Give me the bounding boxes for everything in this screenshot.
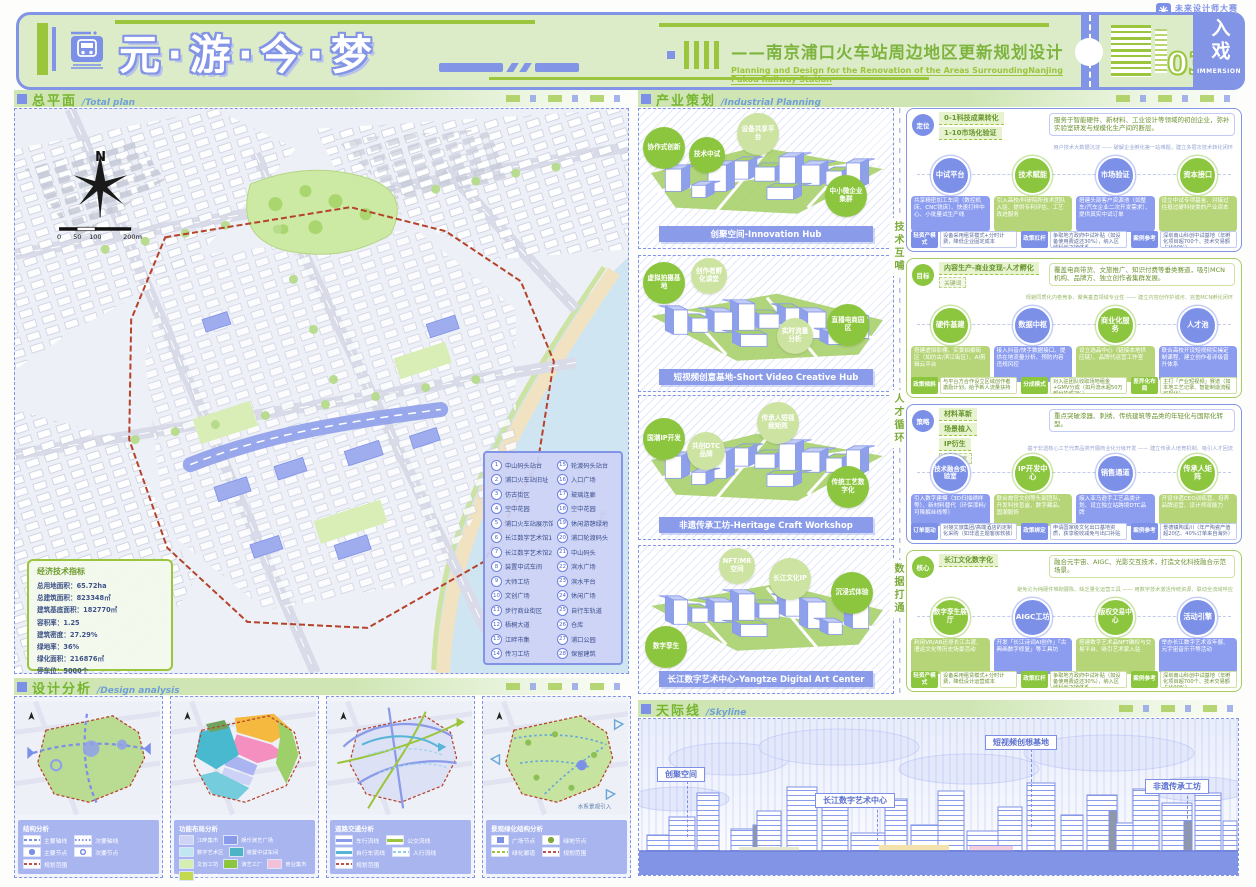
leader-line [1031, 749, 1032, 827]
circle-node: 传承人矩阵 [1178, 454, 1217, 493]
barcode-icon [1155, 29, 1167, 73]
svg-text:200m: 200m [123, 233, 142, 241]
block-keyword: 关键词 [939, 277, 966, 288]
circle-node: 资本接口 [1178, 156, 1217, 195]
master-plan-map: N 0 50 100 200m 长江 [14, 108, 629, 674]
leader-line [687, 781, 688, 837]
legend-item: 15轮渡码头站台 [557, 458, 619, 473]
barcode-icon [1111, 25, 1151, 77]
diagram-bubble: 长江文化IP [769, 558, 811, 600]
block-headline: 长江文化数字化 [939, 554, 998, 567]
panel-legend: 结构分析 主要轴线次要轴线主要节点次要节点规划范围 [18, 820, 159, 874]
diagram-bubble: 技术中试 [689, 137, 725, 173]
legend-swatch-icon [179, 835, 194, 845]
legend-item: 数字艺术区 [179, 847, 224, 857]
diagram-bubble: 虚拟拍摄基地 [643, 262, 685, 304]
right-column: 产业策划 /Industrial Planning 协作式创新 技术中试 设备共… [638, 90, 1242, 878]
block-headline: 1-10市场化验证 [939, 127, 1002, 140]
legend-item: 4空中花园 [491, 502, 553, 517]
legend-swatch-icon [23, 859, 41, 869]
section-ticks-decor [506, 683, 626, 690]
legend-swatch-icon [229, 847, 244, 857]
diagram-bubble: 设备共享平台 [737, 113, 779, 155]
circle-node: 数字孪生展厅 [931, 598, 970, 637]
legend-item: 25自行车轨道 [557, 603, 619, 618]
block-desc: 覆盖电商带货、文旅推广、知识付费等垂类赛道，吸引MCN机构、品牌方、独立创作者集… [1049, 263, 1235, 286]
legend-item: 车行流线 [335, 835, 379, 845]
legend-swatch-icon [179, 847, 194, 857]
block-note: 基于非遗核心工艺代表品类开展商业化分级开发 —— 建立传承人培育机制、吸引人才回… [1017, 445, 1233, 452]
block-note: 用户技术大数据沉淀 —— 破解企业孵化第一站难题，建立多层次技术转化闭环 [1017, 144, 1233, 151]
indicator-row: 绿化面积：216876㎡ [37, 653, 163, 663]
diagram-bubble: 直播电商园区 [827, 304, 869, 346]
badge-cn: 入戏 [1210, 18, 1229, 64]
ticket-hole [1075, 38, 1103, 66]
circle-node: 商业化服务 [1096, 306, 1135, 345]
section-title-industry: 产业策划 /Industrial Planning [638, 90, 1242, 107]
indicator-row: 建筑密度：27.29% [37, 629, 163, 639]
leader-line [1187, 791, 1188, 839]
block-headline: IP衍生 [939, 438, 971, 451]
indicator-row: 停车位：5000个 [37, 665, 163, 675]
industry-diagram-heritage-craft: 国潮IP开发 共创DTC品牌 传承人短视频矩阵 传统工艺数字化 非遗传承工坊-H… [638, 395, 894, 540]
legend-swatch-icon [542, 847, 560, 857]
legend-item: 16入口广场 [557, 473, 619, 488]
legend-item: 绿地节点 [542, 835, 586, 845]
block-footer: 政策倾斜与平台方合作设立区域创作者激励计划，给予新人流量扶持 分成模式对入驻团队… [911, 377, 1237, 394]
legend-item: 1中山码头站台 [491, 458, 553, 473]
legend-item: 24休闲广场 [557, 589, 619, 604]
ticket-divider [1081, 12, 1099, 90]
poster-title: 元·游·今·梦 [119, 21, 379, 81]
legend-item: 27浦口公园 [557, 632, 619, 647]
circle-node: 市场验证 [1096, 156, 1135, 195]
legend-item: 11步行商业街区 [491, 603, 553, 618]
legend-item: 次要节点 [74, 847, 118, 857]
section-bullet-icon [17, 94, 27, 104]
train-icon [69, 31, 105, 75]
skyline-label: 短视频创想基地 [985, 735, 1057, 750]
legend-item: 次要轴线 [74, 835, 118, 845]
industry-diagram-digital-art: NFT/MR空间 长江文化IP 沉浸式体验 数字孪生 长江数字艺术中心-Yang… [638, 545, 894, 694]
legend-item: 21中山码头 [557, 545, 619, 560]
circle-card: 搭建头部客户资源池（如整车/汽车企业二次开发需求）、提供真实中试订单 [1076, 196, 1155, 232]
block-circles: 数字孪生展厅 AIGC工坊 版权交易中心 活动引擎 [909, 597, 1239, 637]
circle-card: 接入亚马逊手工艺品类计划、设立独立站跨境DTC品牌 [1076, 494, 1155, 526]
legend-item: 26仓库 [557, 618, 619, 633]
subtitle-en: Planning and Design for the Renovation o… [731, 66, 1081, 84]
spine-label: 数据打通 [890, 560, 905, 618]
legend-swatch-icon [335, 835, 353, 845]
diagram-bubble: 协作式创新 [643, 127, 685, 169]
block-circles: 中试平台 技术赋能 市场验证 资本接口 [909, 155, 1239, 195]
legend-item: 规划范围 [23, 859, 67, 869]
plan-legend-box: 1中山码头站台 2浦口火车站旧址 3仿古街区 4空中花园 [483, 451, 623, 665]
decor-bar-blue [52, 27, 56, 71]
decor-green-bars [667, 41, 719, 69]
diagram-bubble: 数字孪生 [645, 626, 687, 668]
legend-swatch-icon [223, 859, 238, 869]
legend-swatch-icon [179, 859, 194, 869]
panel-legend: 功能布局分析 江畔集市娱乐演艺广场数字艺术区装置中试车间文创工坊演艺工厂商业集市… [174, 820, 315, 874]
legend-item: 装置中试车间 [229, 847, 279, 857]
legend-item: 娱乐演艺广场 [223, 835, 273, 845]
legend-swatch-icon [542, 835, 560, 845]
legend-item: 规划范围 [335, 859, 379, 869]
circle-card: 开发「长江诗词AI创作」「古典画数字修复」等工具坊 [994, 638, 1073, 674]
legend-item: 绿化廊道 [491, 847, 535, 857]
legend-item: 主要轴线 [23, 835, 67, 845]
circle-node: 数据中枢 [1013, 306, 1052, 345]
legend-item: 7长江数字艺术馆2 [491, 545, 553, 560]
legend-item: 22滨水广场 [557, 560, 619, 575]
circle-card: 举办长江数字艺术双年展、元宇宙音乐节等活动 [1159, 638, 1238, 674]
indicator-rows: 总用地面积：65.72ha 总建筑面积：823348㎡ 建筑基底面积：18277… [37, 580, 163, 675]
legend-item: 23滨水平台 [557, 574, 619, 589]
legend-swatch-icon [74, 847, 92, 857]
circle-card: 引入数字建模（3D扫描绣样等）、新材料替代（环保漆料/可降解丝线等） [911, 494, 990, 526]
legend-item: 2浦口火车站旧址 [491, 473, 553, 488]
legend-swatch-icon [392, 847, 410, 857]
diagram-bubble: 共创DTC品牌 [687, 432, 725, 470]
header-banner: 元·游·今·梦 ——南京浦口火车站周边地区更新规划设计 Planning and… [16, 12, 1245, 90]
circle-node: IP开发中心 [1013, 454, 1052, 493]
block-footer: 轻资产模式设备采用租赁模式+分时计费，降低企业固定成本 政策杠杆争取地方政府中试… [911, 231, 1237, 248]
section-bullet-icon [641, 94, 651, 104]
legend-swatch-icon [335, 847, 353, 857]
strategy-block-yangtze: 核心 长江文化数字化 融合元宇宙、AIGC、光影交互技术，打造文化科技融合示范场… [906, 550, 1242, 692]
legend-item: 12梧桐大道 [491, 618, 553, 633]
legend-swatch-icon [179, 871, 194, 881]
section-ticks-decor [506, 95, 626, 102]
legend-swatch-icon [23, 847, 41, 857]
section-title-design-analysis: 设计分析 /Design analysis [14, 678, 632, 695]
diag ram-bubble: 沉浸式体验 [831, 572, 873, 614]
circle-node: 技术融合实验室 [931, 454, 970, 493]
legend-swatch-icon [23, 835, 41, 845]
block-tag: 核心 [912, 556, 934, 578]
legend-item: 商业集市 [267, 859, 306, 869]
circle-node: 销售通道 [1096, 454, 1135, 493]
diagram-bubble: 实时流量分析 [777, 318, 813, 354]
leader-line [877, 805, 878, 841]
industry-spine: 技术互哺 人才循环 数据打通 [894, 108, 906, 694]
indicators-box: 经济技术指标 总用地面积：65.72ha 总建筑面积：823348㎡ 建筑基底面… [27, 559, 173, 671]
legend-item: 3仿古街区 [491, 487, 553, 502]
legend-item: 规划范围 [542, 847, 586, 857]
design-analysis-panels: 结构分析 主要轴线次要轴线主要节点次要节点规划范围 [14, 696, 632, 878]
legend-item: 28保留建筑 [557, 647, 619, 662]
subtitle-block: ——南京浦口火车站周边地区更新规划设计 Planning and Design … [731, 39, 1081, 84]
section-ticks-decor [1119, 705, 1239, 712]
block-footer: 轻资产模式设备采用租赁模式+分时计费，降低设计运营成本 政策杠杆争取地方政府中试… [911, 671, 1237, 688]
block-circles: 技术融合实验室 IP开发中心 销售通道 传承人矩阵 [909, 453, 1239, 493]
diagram-bubble: 创作者孵化课堂 [691, 258, 727, 294]
legend-item: 6长江数字艺术馆1 [491, 531, 553, 546]
diagram-bubble: 传统工艺数字化 [827, 466, 869, 508]
block-cards: 利用VR/AR还原长江古渡、漕运文化等历史场景活动 开发「长江诗词AI创作」「古… [911, 638, 1237, 674]
legend-item: 主要节点 [23, 847, 67, 857]
legend-item: 公交流线 [386, 835, 430, 845]
industry-blocks: 定位 0-1科技成果转化 1-10市场化验证 服务于智能硬件、新材料、工业设计等… [906, 108, 1242, 694]
indicator-row: 建筑基底面积：182770㎡ [37, 604, 163, 614]
title-decor [439, 63, 579, 72]
immersion-badge: 入戏 IMMERSION [1193, 12, 1245, 90]
legend-item: 8装置中试车间 [491, 560, 553, 575]
legend-item: 17玻璃连廊 [557, 487, 619, 502]
legend-swatch-icon [491, 847, 509, 857]
skyline-label: 创聚空间 [657, 767, 705, 782]
block-headline: 内容生产-商业变现-人才孵化 [939, 262, 1039, 275]
circle-node: 中试平台 [931, 156, 970, 195]
skyline-canvas: 创聚空间 短视频创想基地 长江数字艺术中心 非遗传承工坊 [638, 718, 1239, 876]
legend-item: 13江畔市集 [491, 632, 553, 647]
indicator-row: 总用地面积：65.72ha [37, 580, 163, 590]
badge-en: IMMERSION [1197, 68, 1241, 75]
strategy-block-content: 目标 内容生产-商业变现-人才孵化 关键词 覆盖电商带货、文旅推广、知识付费等垂… [906, 258, 1242, 398]
diagram-label: 短视频创意基地-Short Video Creative Hub [659, 369, 873, 385]
circle-node: 活动引擎 [1178, 598, 1217, 637]
legend-item: 广场节点 [491, 835, 535, 845]
section-ticks-decor [1116, 95, 1236, 102]
industry-diagram-short-video: 虚拟拍摄基地 创作者孵化课堂 直播电商园区 实时流量分析 短视频创意基地-Sho… [638, 255, 894, 392]
legend-swatch-icon [335, 859, 353, 869]
block-tag: 策略 [912, 410, 934, 432]
block-headline: 材料革新 [939, 408, 977, 421]
block-desc: 重点突破漆器、刺绣、传统建筑等品类的年轻化与国际化转型。 [1049, 409, 1235, 432]
block-footer: 订单驱动对接文旅集团/高端酒店的定制化采购（如非遗主题客房软装） 政策绑定申请国… [911, 523, 1237, 540]
svg-text:0: 0 [57, 233, 61, 241]
circle-node: 版权交易中心 [1096, 598, 1135, 637]
section-bullet-icon [17, 682, 27, 692]
spine-label: 技术互哺 [890, 218, 905, 276]
block-cards: 引入数字建模（3D扫描绣样等）、新材料替代（环保漆料/可降解丝线等） 联合故宫文… [911, 494, 1237, 526]
plan-legend-items: 1中山码头站台 2浦口火车站旧址 3仿古街区 4空中花园 [491, 458, 617, 661]
legend-item: 文创工坊 [179, 859, 218, 869]
diagram-bubble: 国潮IP开发 [643, 418, 685, 460]
decor-bar-green [37, 23, 48, 75]
indicator-row: 总建筑面积：823348㎡ [37, 592, 163, 602]
circle-node: 技术赋能 [1013, 156, 1052, 195]
water-note: 水系景观引入 [578, 802, 612, 810]
circle-node: 硬件基建 [931, 306, 970, 345]
industry-diagram-innovation-hub: 协作式创新 技术中试 设备共享平台 中小微企业集群 创聚空间-Innovatio… [638, 108, 894, 249]
legend-swatch-icon [491, 835, 509, 845]
circle-card: 利用VR/AR还原长江古渡、漕运文化等历史场景活动 [911, 638, 990, 674]
legend-item: 演艺工厂 [223, 859, 262, 869]
circle-card: 共享精密加工车间（数控机床、CNC铣床）、快速打样中心、小批量试生产线 [911, 196, 990, 232]
section-bullet-icon [641, 704, 651, 714]
skyline-label: 非遗传承工坊 [1145, 779, 1209, 794]
legend-item: 20浦口轮渡码头 [557, 531, 619, 546]
block-desc: 融合元宇宙、AIGC、光影交互技术，打造文化科技融合示范场景。 [1049, 555, 1235, 578]
circle-card: 引入高校/科研院所技术团队入驻、提供专利评估、工艺改进服务 [994, 196, 1073, 232]
indicator-row: 容积率：1.25 [37, 617, 163, 627]
diagram-bubble: 传承人短视频矩阵 [757, 402, 799, 444]
block-tag: 定位 [912, 114, 934, 136]
poster: 未来设计师大赛 元·游·今·梦 — [0, 0, 1256, 887]
circle-card: 设立中试专项基金、对接过往投过硬科技类的产业资本 [1159, 196, 1238, 232]
legend-swatch-icon [267, 859, 282, 869]
block-tag: 目标 [912, 264, 934, 286]
block-note: 规避同质化内卷竞争、聚焦垂直领域专业性 —— 建立内容创作护城河、完善MCN孵化… [1017, 294, 1233, 301]
design-panel-landscape: 水系景观引入 景观绿化结构分析 广场节点绿地节点绿化廊道规划范围 [482, 696, 631, 878]
diagram-bubble: 中小微企业集群 [825, 175, 867, 217]
skyline-illustration [639, 719, 1239, 876]
svg-text:50: 50 [73, 233, 81, 241]
circle-card: 搭建数字艺术品NFT确权与交易平台、吸引艺术家入驻 [1076, 638, 1155, 674]
strategy-block-pilot: 定位 0-1科技成果转化 1-10市场化验证 服务于智能硬件、新材料、工业设计等… [906, 108, 1242, 252]
legend-item: 5浦口火车站展示馆 [491, 516, 553, 531]
circle-card: 开设非遗CEO训练营、培养品牌运营、设计师双能力 [1159, 494, 1238, 526]
block-circles: 硬件基建 数据中枢 商业化服务 人才池 [909, 305, 1239, 345]
legend-item: 传习工坊 [179, 871, 218, 881]
svg-text:100: 100 [89, 233, 101, 241]
design-panel-structure: 结构分析 主要轴线次要轴线主要节点次要节点规划范围 [14, 696, 163, 878]
indicator-row: 绿地率：36% [37, 641, 163, 651]
block-headline: 0-1科技成果转化 [939, 112, 1004, 125]
design-panel-function: 功能布局分析 江畔集市娱乐演艺广场数字艺术区装置中试车间文创工坊演艺工厂商业集市… [170, 696, 319, 878]
legend-item: 9大师工坊 [491, 574, 553, 589]
panel-legend: 景观绿化结构分析 广场节点绿地节点绿化廊道规划范围 [486, 820, 627, 874]
block-cards: 共享精密加工车间（数控机床、CNC铣床）、快速打样中心、小批量试生产线 引入高校… [911, 196, 1237, 232]
left-column: 总平面 /Total plan [14, 90, 632, 878]
legend-item: 18空中花园 [557, 502, 619, 517]
circle-node: AIGC工坊 [1013, 598, 1052, 637]
diagram-label: 非遗传承工坊-Heritage Craft Workshop [659, 517, 873, 533]
legend-swatch-icon [386, 835, 404, 845]
legend-item: 14传习工坊 [491, 647, 553, 662]
strategy-block-heritage: 策略 材料革新 场景植入 IP衍生 渠道拓宽 重点突破漆器、刺绣、传统建筑等品类… [906, 404, 1242, 544]
section-title-total-plan: 总平面 /Total plan [14, 90, 632, 107]
subtitle-cn: ——南京浦口火车站周边地区更新规划设计 [731, 39, 1081, 63]
skyline-label: 长江数字艺术中心 [815, 793, 895, 808]
diagram-label: 长江数字艺术中心-Yangtze Digital Art Center [659, 671, 873, 687]
legend-item: 人行流线 [392, 847, 436, 857]
legend-item: 自行车流线 [335, 847, 385, 857]
legend-swatch-icon [74, 835, 92, 845]
legend-item: 江畔集市 [179, 835, 218, 845]
section-title-skyline: 天际线 /Skyline [638, 700, 1245, 717]
design-panel-traffic: 道路交通分析 车行流线公交流线自行车流线人行流线规划范围 [326, 696, 475, 878]
legend-swatch-icon [223, 835, 238, 845]
block-note: 避免沦为纯硬件堆砌展陈、缺乏量化运营工具 —— 用数字技术激活传统资源、联动全流… [1017, 586, 1233, 593]
industry-diagrams: 协作式创新 技术中试 设备共享平台 中小微企业集群 创聚空间-Innovatio… [638, 108, 894, 694]
circle-node: 人才池 [1178, 306, 1217, 345]
panel-legend: 道路交通分析 车行流线公交流线自行车流线人行流线规划范围 [330, 820, 471, 874]
spine-label: 人才循环 [890, 390, 905, 448]
diagram-bubble: NFT/MR空间 [719, 548, 755, 584]
indicators-title: 经济技术指标 [37, 566, 163, 577]
legend-item: 19休闲游憩绿地 [557, 516, 619, 531]
block-desc: 服务于智能硬件、新材料、工业设计等领域的初创企业，弥补实验室研发与规模化生产间的… [1049, 113, 1235, 136]
legend-item: 10文创广场 [491, 589, 553, 604]
diagram-label: 创聚空间-Innovation Hub [659, 226, 873, 242]
circle-card: 联合故宫文创等头部团队，开发科技盲盒、数字藏品、国潮服饰 [994, 494, 1073, 526]
block-headline: 场景植入 [939, 423, 977, 436]
decor-line [659, 23, 1049, 27]
